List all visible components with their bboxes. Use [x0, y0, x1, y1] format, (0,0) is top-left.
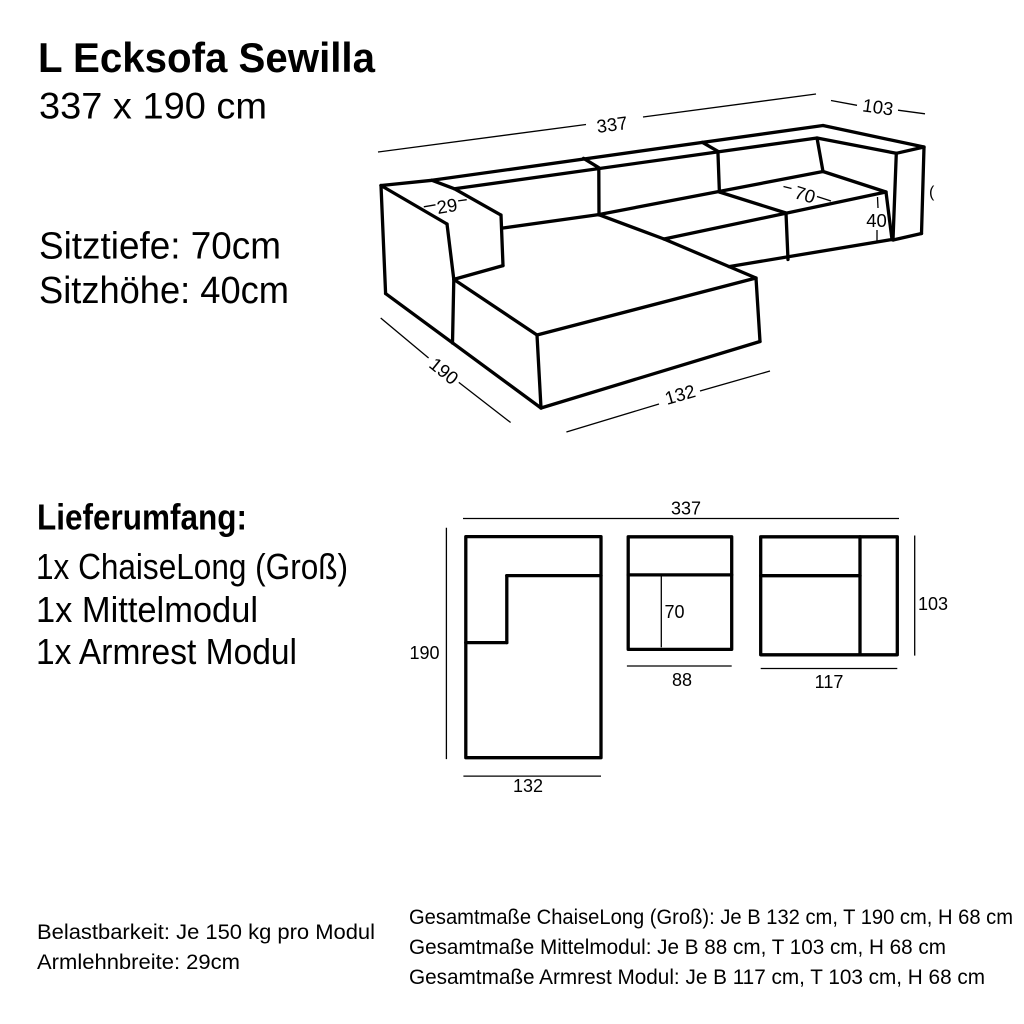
svg-text:L Ecksofa Sewilla: L Ecksofa Sewilla [38, 34, 376, 81]
svg-text:1x Armrest Modul: 1x Armrest Modul [36, 631, 297, 672]
svg-text:1x ChaiseLong (Groß): 1x ChaiseLong (Groß) [36, 546, 348, 587]
svg-text:132: 132 [513, 776, 543, 796]
svg-text:337: 337 [595, 112, 628, 137]
svg-text:103: 103 [861, 94, 894, 119]
svg-text:88: 88 [672, 670, 692, 690]
svg-text:103: 103 [918, 594, 948, 614]
svg-text:Gesamtmaße ChaiseLong (Groß):: Gesamtmaße ChaiseLong (Groß): Je B 132 c… [409, 905, 1013, 929]
svg-text:(: ( [929, 184, 935, 201]
svg-text:29: 29 [435, 194, 459, 218]
svg-text:132: 132 [662, 380, 697, 409]
svg-text:Sitzhöhe: 40cm: Sitzhöhe: 40cm [39, 270, 289, 312]
svg-text:Gesamtmaße Armrest Modul: Je B: Gesamtmaße Armrest Modul: Je B 117 cm, T… [409, 965, 985, 989]
svg-text:117: 117 [815, 672, 844, 692]
svg-text:190: 190 [409, 643, 439, 663]
svg-text:Belastbarkeit: Je 150 kg pro M: Belastbarkeit: Je 150 kg pro Modul [37, 920, 375, 944]
svg-text:70: 70 [792, 181, 818, 207]
svg-text:Armlehnbreite: 29cm: Armlehnbreite: 29cm [37, 950, 240, 974]
svg-text:Lieferumfang:: Lieferumfang: [37, 497, 247, 538]
svg-text:Sitztiefe: 70cm: Sitztiefe: 70cm [39, 226, 281, 268]
svg-text:337: 337 [671, 499, 701, 519]
svg-text:70: 70 [665, 602, 685, 622]
svg-text:337 x 190 cm: 337 x 190 cm [39, 86, 267, 127]
svg-text:Gesamtmaße Mittelmodul: Je B 8: Gesamtmaße Mittelmodul: Je B 88 cm, T 10… [409, 935, 946, 959]
svg-text:1x Mittelmodul: 1x Mittelmodul [36, 589, 258, 630]
svg-text:190: 190 [425, 353, 462, 389]
svg-text:40: 40 [866, 210, 887, 231]
